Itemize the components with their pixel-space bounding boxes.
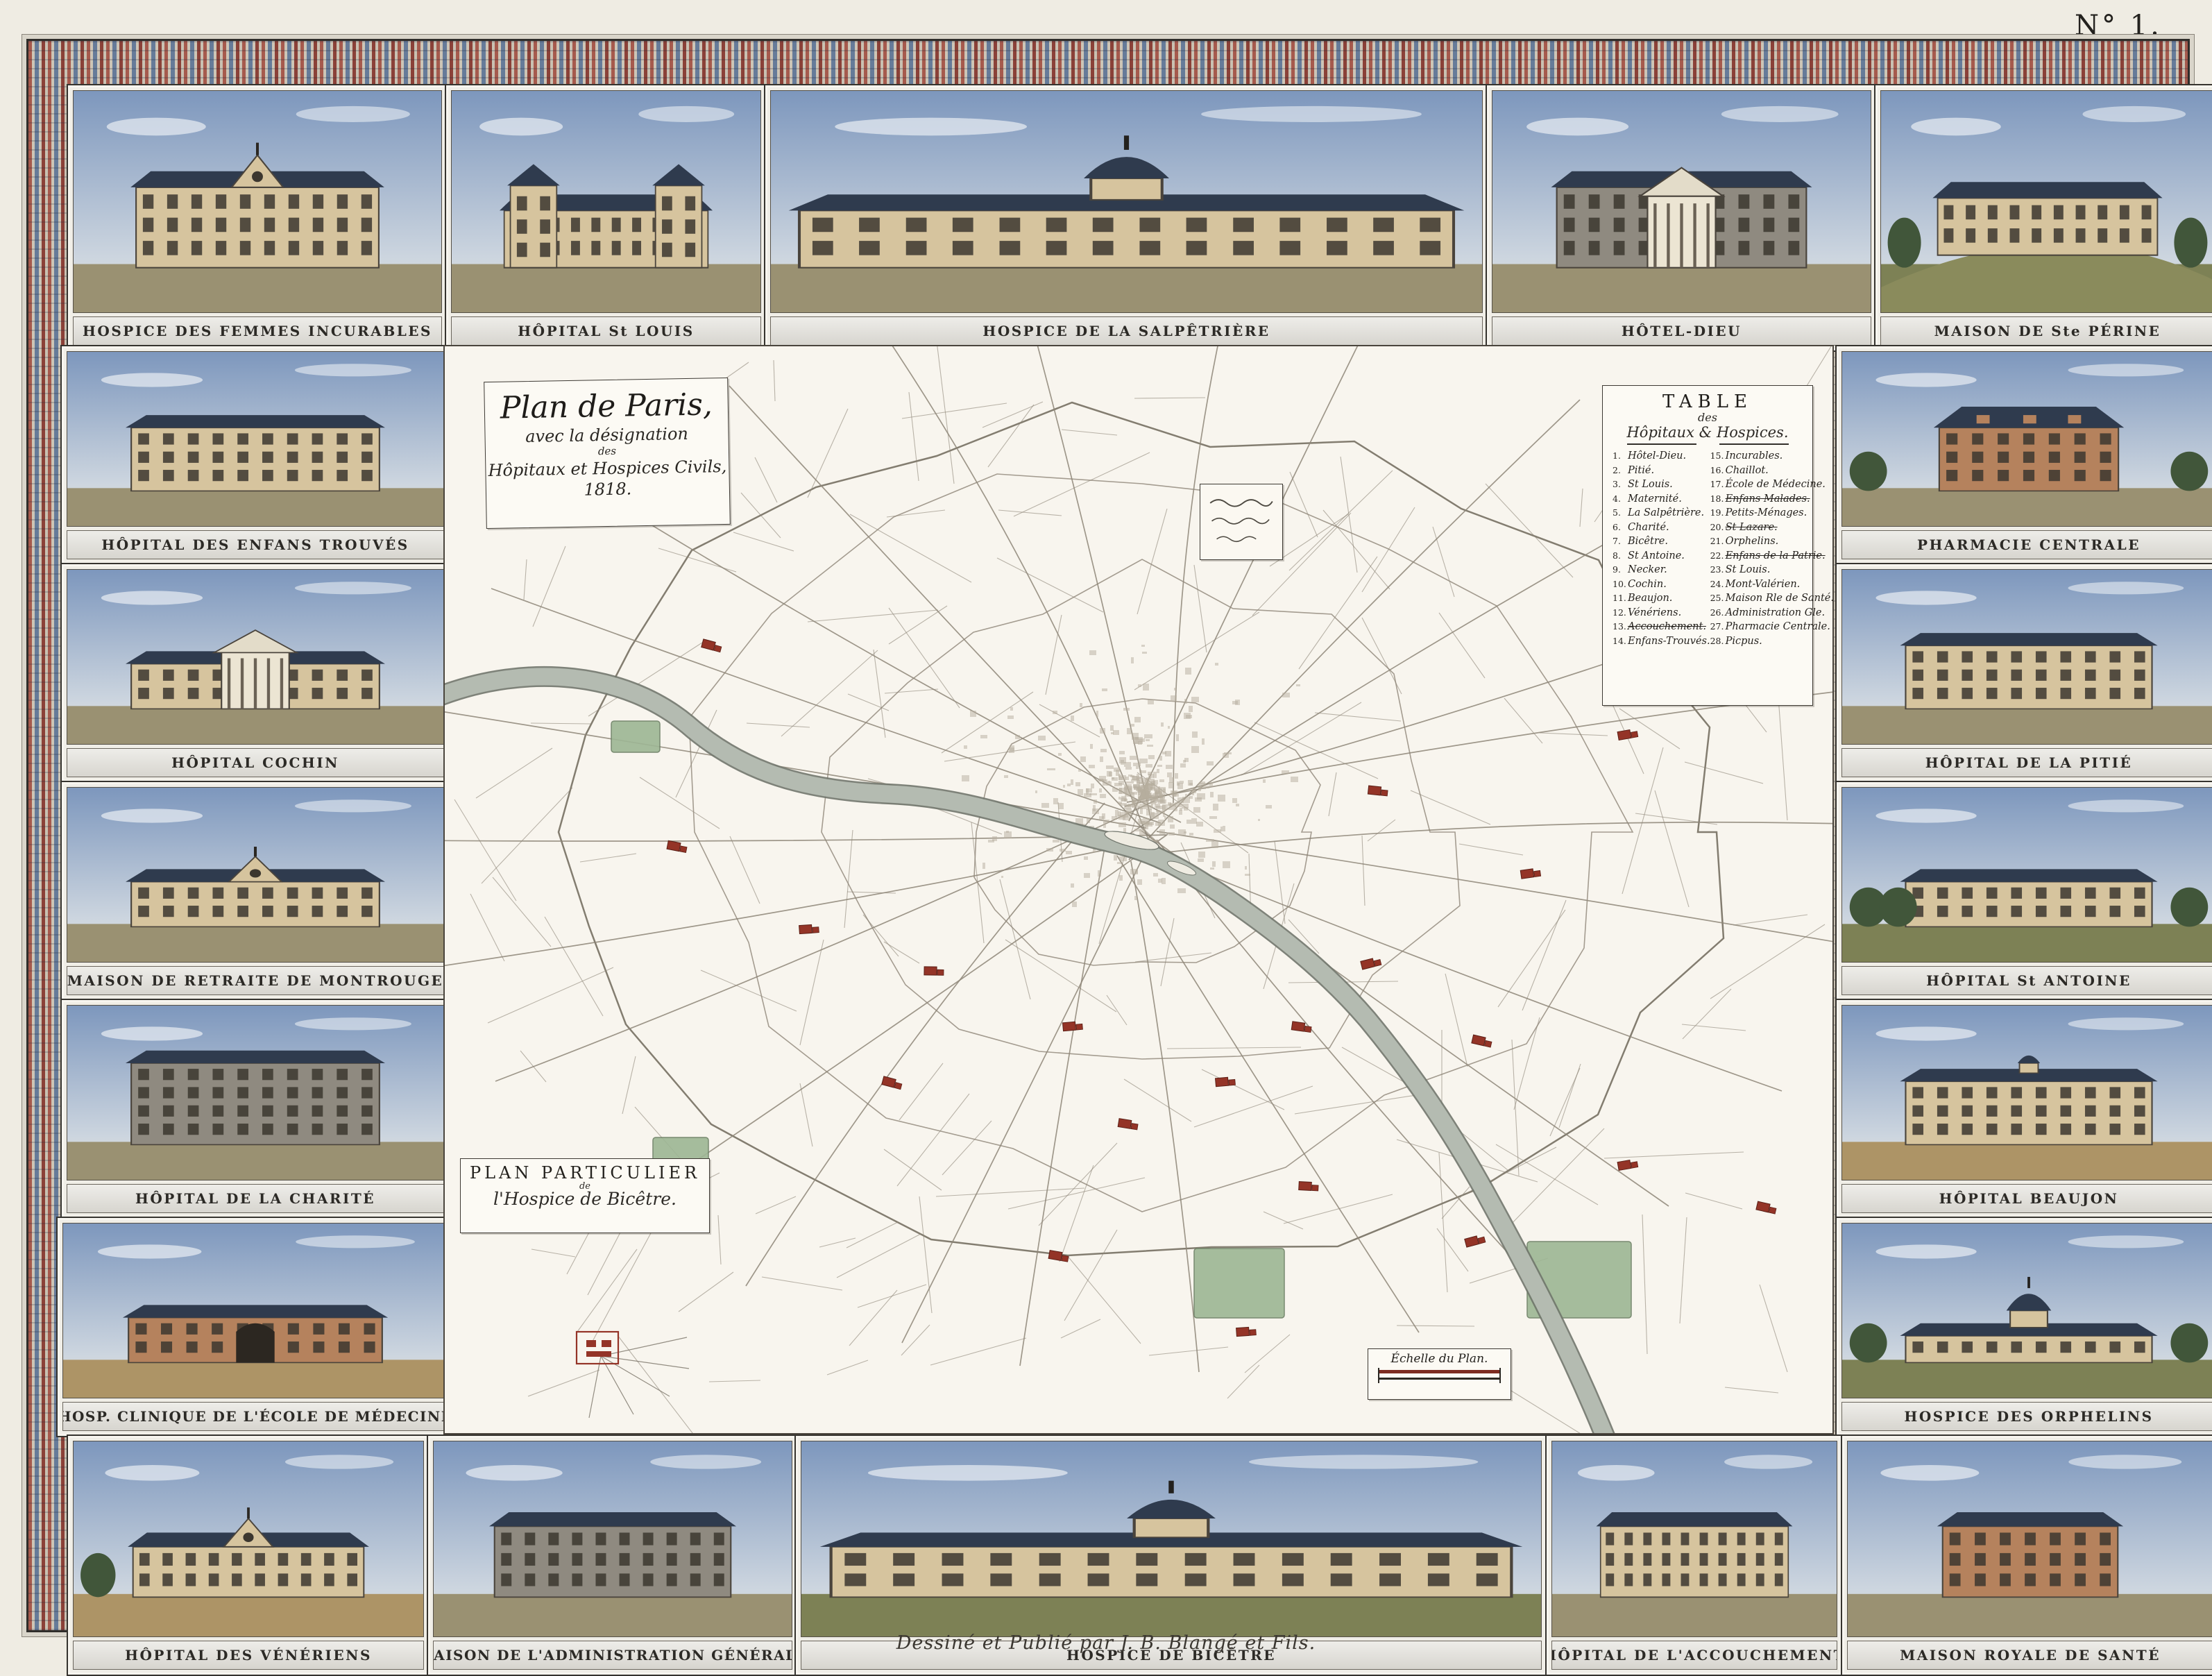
vignette-top-0: HOSPICE DES FEMMES INCURABLES	[67, 84, 448, 352]
table-entry: 26.Administration Gle.	[1710, 606, 1834, 620]
vignette-caption: HOSPICE DES FEMMES INCURABLES	[73, 316, 442, 346]
corner-brick-block-building-view	[1847, 1441, 2212, 1637]
vignette-caption: MAISON DE Ste PÉRINE	[1880, 316, 2212, 346]
vignette-caption: HÔPITAL St LOUIS	[451, 316, 761, 346]
paris-map-panel: Plan de Paris, avec la désignation des H…	[443, 345, 1834, 1434]
table-heading-des: des	[1603, 411, 1812, 424]
table-entry: 17.École de Médecine.	[1710, 477, 1834, 492]
table-entry: 16.Chaillot.	[1710, 464, 1834, 478]
scale-label: Échelle du Plan.	[1368, 1352, 1511, 1366]
table-entry: 25.Maison Rle de Santé.	[1710, 591, 1834, 606]
vignette-caption: HÔPITAL DES ENFANS TROUVÉS	[67, 530, 444, 559]
vignette-right-2: HÔPITAL St ANTOINE	[1835, 781, 2212, 1001]
vignette-caption: HOSPICE DE LA SALPÊTRIÈRE	[770, 316, 1483, 346]
arcaded-front-building-view	[67, 787, 444, 963]
vignette-top-3: HÔTEL-DIEU	[1486, 84, 1878, 352]
engraved-plate-page: N° 1. HOSPICE DES FEMMES INCURABLESHÔPIT…	[0, 0, 2212, 1666]
vignette-caption: HÔPITAL St ANTOINE	[1841, 966, 2212, 995]
table-entry: 20.St Lazare.	[1710, 520, 1834, 535]
table-entry: 2.Pitié.	[1613, 464, 1710, 478]
plan-particulier-cartouche: PLAN PARTICULIER de l'Hospice de Bicêtre…	[460, 1158, 710, 1233]
vignette-caption: HÔPITAL BEAUJON	[1841, 1184, 2212, 1213]
engraver-credit: Dessiné et Publié par J. B. Blangé et Fi…	[0, 1632, 2212, 1654]
vignette-left-1: HÔPITAL COCHIN	[60, 563, 450, 784]
table-columns: 1.Hôtel-Dieu.2.Pitié.3.St Louis.4.Matern…	[1603, 449, 1812, 648]
vignette-caption: MAISON DE RETRAITE DE MONTROUGE	[67, 966, 444, 995]
twin-pavilions-building-view	[451, 90, 761, 313]
table-entry: 6.Charité.	[1613, 520, 1710, 535]
table-entry: 7.Bicêtre.	[1613, 534, 1710, 549]
vignette-caption: HOSP. CLINIQUE DE L'ÉCOLE DE MÉDECINE	[62, 1402, 448, 1431]
table-entry: 3.St Louis.	[1613, 477, 1710, 492]
table-rules	[1615, 443, 1800, 445]
map-title-line-1: Plan de Paris,	[484, 387, 728, 426]
table-entry: 8.St Antoine.	[1613, 549, 1710, 564]
vignette-top-4: MAISON DE Ste PÉRINE	[1874, 84, 2212, 352]
table-entry: 9.Necker.	[1613, 563, 1710, 577]
vignette-caption: HOSPICE DES ORPHELINS	[1841, 1402, 2212, 1431]
plate-number: N° 1.	[2075, 10, 2162, 42]
vignette-left-4: HOSP. CLINIQUE DE L'ÉCOLE DE MÉDECINE	[56, 1217, 454, 1437]
panorama-dome-building-view	[770, 90, 1483, 313]
vignette-right-0: PHARMACIE CENTRALE	[1835, 345, 2212, 566]
table-entry: 13.Accouchement.	[1613, 620, 1710, 634]
long-block-building-view	[1551, 1441, 1837, 1637]
table-entry: 27.Pharmacie Centrale.	[1710, 620, 1834, 634]
vignette-left-2: MAISON DE RETRAITE DE MONTROUGE	[60, 781, 450, 1001]
map-note-box	[1200, 484, 1283, 560]
table-entry: 15.Incurables.	[1710, 449, 1834, 464]
vignette-top-2: HOSPICE DE LA SALPÊTRIÈRE	[764, 84, 1489, 352]
mansard-mansion-building-view	[1841, 351, 2212, 527]
hospital-table-cartouche: TABLE des Hôpitaux & Hospices. 1.Hôtel-D…	[1602, 385, 1813, 706]
table-entry: 5.La Salpêtrière.	[1613, 506, 1710, 520]
vignette-caption: HÔPITAL DE LA CHARITÉ	[67, 1184, 444, 1213]
table-entry: 21.Orphelins.	[1710, 534, 1834, 549]
handwritten-note-squiggles	[1200, 484, 1282, 559]
dark-long-block-building-view	[433, 1441, 792, 1637]
chapel-court-building-view	[73, 90, 442, 313]
table-entry: 14.Enfans-Trouvés.	[1613, 634, 1710, 649]
table-column-2: 15.Incurables.16.Chaillot.17.École de Mé…	[1710, 449, 1834, 648]
classical-portico-building-view	[1492, 90, 1871, 313]
table-entry: 22.Enfans de la Patrie.	[1710, 549, 1834, 564]
title-cartouche: Plan de Paris, avec la désignation des H…	[484, 378, 731, 529]
farm-court-building-view	[73, 1441, 424, 1637]
vignette-left-0: HÔPITAL DES ENFANS TROUVÉS	[60, 345, 450, 566]
table-entry: 18.Enfans Malades.	[1710, 492, 1834, 507]
table-column-1: 1.Hôtel-Dieu.2.Pitié.3.St Louis.4.Matern…	[1613, 449, 1710, 648]
table-heading: TABLE	[1603, 391, 1812, 412]
court-facade-building-view	[67, 569, 444, 745]
table-entry: 11.Beaujon.	[1613, 591, 1710, 606]
table-entry: 23.St Louis.	[1710, 563, 1834, 577]
vignette-right-1: HÔPITAL DE LA PITIÉ	[1835, 563, 2212, 784]
vignette-left-3: HÔPITAL DE LA CHARITÉ	[60, 999, 450, 1219]
table-entry: 24.Mont-Valérien.	[1710, 577, 1834, 592]
scale-cartouche: Échelle du Plan.	[1368, 1348, 1511, 1400]
map-title-line-4: Hôpitaux et Hospices Civils,	[486, 457, 729, 480]
table-heading-subject: Hôpitaux & Hospices.	[1603, 424, 1812, 441]
walled-long-building-view	[1841, 787, 2212, 963]
table-entry: 12.Vénériens.	[1613, 606, 1710, 620]
table-entry: 10.Cochin.	[1613, 577, 1710, 592]
vignette-right-4: HOSPICE DES ORPHELINS	[1835, 1217, 2212, 1437]
long-block-building-view	[1841, 569, 2212, 745]
scale-bar-toises	[1378, 1370, 1501, 1373]
inset-title-line-1: PLAN PARTICULIER	[461, 1163, 709, 1183]
scale-bar-metres	[1378, 1378, 1501, 1380]
table-entry: 4.Maternité.	[1613, 492, 1710, 507]
vignette-right-3: HÔPITAL BEAUJON	[1835, 999, 2212, 1219]
table-entry: 1.Hôtel-Dieu.	[1613, 449, 1710, 464]
table-entry: 19.Petits-Ménages.	[1710, 506, 1834, 520]
vignette-caption: HÔPITAL COCHIN	[67, 748, 444, 777]
long-block-building-view	[67, 351, 444, 527]
vignette-caption: HÔPITAL DE LA PITIÉ	[1841, 748, 2212, 777]
vast-panorama-building-view	[801, 1441, 1542, 1637]
domed-chapel-building-view	[1841, 1223, 2212, 1398]
hilltop-palace-building-view	[1880, 90, 2212, 313]
vignette-top-1: HÔPITAL St LOUIS	[445, 84, 767, 352]
vignette-caption: PHARMACIE CENTRALE	[1841, 530, 2212, 559]
cupola-block-building-view	[1841, 1005, 2212, 1180]
table-entry: 28.Picpus.	[1710, 634, 1834, 649]
map-title-line-5: 1818.	[486, 477, 729, 501]
vignette-caption: HÔTEL-DIEU	[1492, 316, 1871, 346]
tall-courtyard-building-view	[67, 1005, 444, 1180]
inset-title-line-3: l'Hospice de Bicêtre.	[461, 1189, 709, 1209]
brick-gateway-building-view	[62, 1223, 448, 1398]
plate-border-band: HOSPICE DES FEMMES INCURABLESHÔPITAL St …	[26, 39, 2190, 1632]
